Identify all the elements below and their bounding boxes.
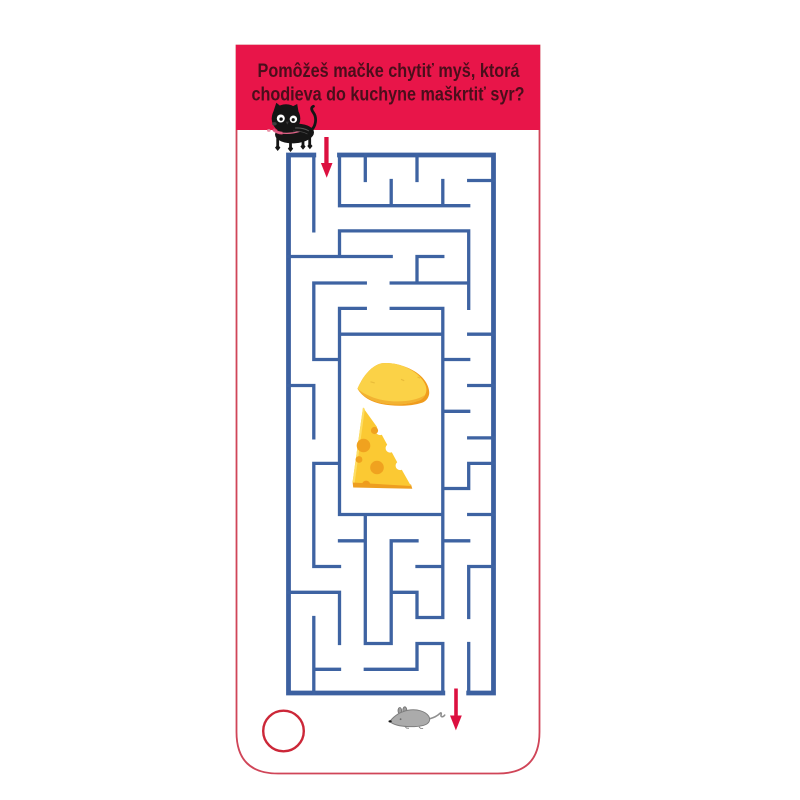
svg-text:Pomôžeš mačke chytiť myš, ktor: Pomôžeš mačke chytiť myš, ktorá [258, 61, 520, 82]
svg-text:chodieva do kuchyne maškrtiť s: chodieva do kuchyne maškrtiť syr? [252, 85, 525, 106]
